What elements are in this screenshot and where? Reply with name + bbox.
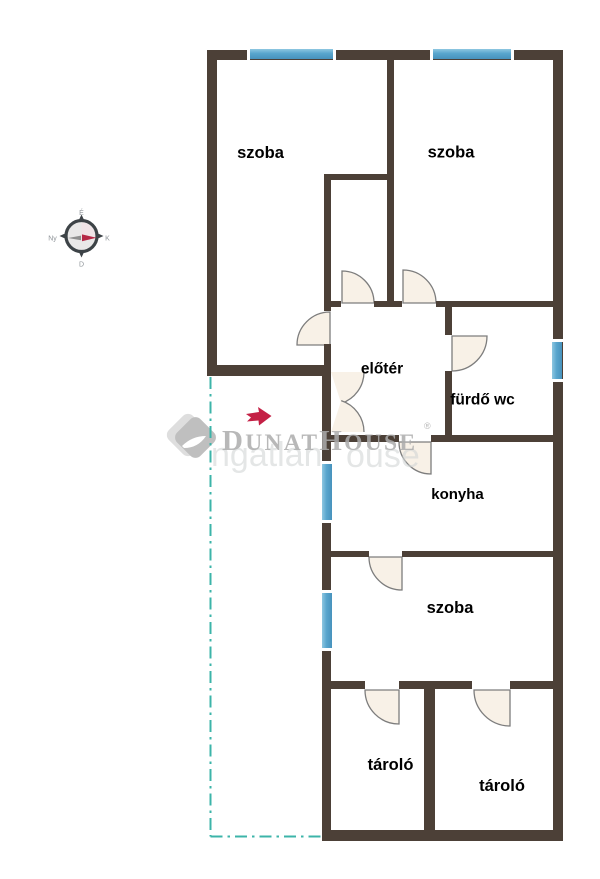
svg-text:tároló: tároló (368, 756, 414, 774)
svg-text:DUNATHOUSE: DUNATHOUSE (222, 425, 417, 457)
svg-text:fürdő wc: fürdő wc (450, 392, 515, 409)
svg-text:®: ® (424, 421, 431, 431)
svg-text:szoba: szoba (237, 144, 285, 162)
svg-text:szoba: szoba (427, 599, 475, 617)
svg-text:D: D (79, 262, 84, 269)
svg-text:konyha: konyha (431, 486, 484, 503)
svg-text:előtér: előtér (361, 361, 403, 378)
svg-text:É: É (79, 208, 84, 217)
svg-text:K: K (105, 236, 110, 243)
svg-text:szoba: szoba (428, 144, 476, 162)
svg-text:Ny: Ny (48, 236, 57, 243)
svg-text:tároló: tároló (479, 777, 525, 795)
